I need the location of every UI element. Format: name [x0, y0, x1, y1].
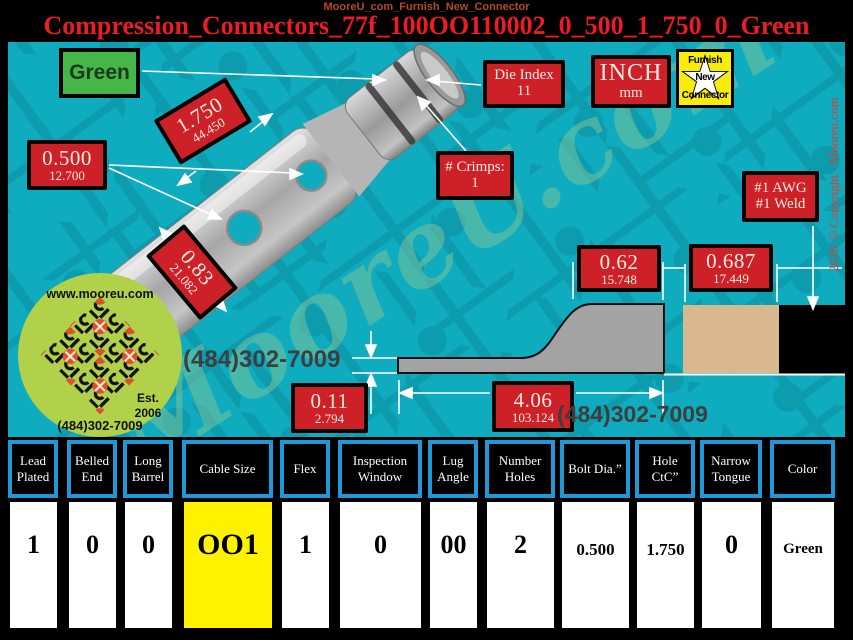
phone-number-2: (484)302-7009	[557, 401, 708, 428]
col-header-color: Color	[770, 440, 835, 498]
units-label: INCH mm	[591, 55, 671, 108]
col-header-bolt-dia: Bolt Dia.”	[560, 440, 630, 498]
value-lug-angle: 00	[430, 502, 477, 628]
value-number-holes: 2	[487, 502, 554, 628]
pad-height-label: 0.62 15.748	[577, 245, 661, 292]
company-logo: www.mooreu.com Est. 2006 (484)302-7009	[17, 272, 183, 438]
profile-drawing	[398, 304, 845, 375]
value-hole-ctc: 1.750	[637, 502, 694, 628]
col-header-narrow-tongue: Narrow Tongue	[700, 440, 762, 498]
logo-phone: (484)302-7009	[57, 418, 142, 433]
value-narrow-tongue: 0	[702, 502, 761, 628]
furnish-line3: Connector	[679, 90, 731, 101]
col-header-cable-size: Cable Size	[182, 440, 273, 498]
copyright-notice: 2018 ©Copyright - Mooreu.com	[826, 48, 842, 272]
value-bolt-dia: 0.500	[562, 502, 629, 628]
tongue-thickness-label: 0.11 2.794	[291, 383, 368, 433]
col-header-flex: Flex	[280, 440, 330, 498]
crimps-label: # Crimps: 1	[436, 151, 514, 200]
value-lead-plated: 1	[10, 502, 57, 628]
barrel-bore-view	[779, 305, 845, 375]
furnish-line1: Furnish	[679, 55, 731, 66]
value-long-barrel: 0	[125, 502, 172, 628]
logo-url: www.mooreu.com	[45, 287, 153, 301]
col-header-lead-plated: Lead Plated	[8, 440, 58, 498]
page: MooreU_com_Furnish_New_Connector Compres…	[0, 0, 853, 640]
col-header-long-barrel: Long Barrel	[123, 440, 173, 498]
attribute-table: Lead Plated Belled End Long Barrel Cable…	[0, 437, 853, 640]
phone-number-1: (484)302-7009	[183, 346, 340, 374]
col-header-number-holes: Number Holes	[485, 440, 555, 498]
value-color: Green	[772, 502, 834, 628]
value-flex: 1	[282, 502, 329, 628]
logo-est: Est.	[137, 391, 159, 405]
furnish-line2: New	[679, 72, 731, 83]
col-header-lug-angle: Lug Angle	[428, 440, 478, 498]
barrel-od-label: 0.687 17.449	[689, 244, 773, 292]
value-inspection-window: 0	[340, 502, 421, 628]
barrel-end-view	[683, 305, 779, 373]
col-header-belled-end: Belled End	[67, 440, 117, 498]
value-belled-end: 0	[69, 502, 116, 628]
value-cable-size: OO1	[184, 502, 272, 628]
col-header-inspection-window: Inspection Window	[338, 440, 422, 498]
color-green-button[interactable]: Green	[59, 48, 140, 98]
die-index-label: Die Index 11	[483, 60, 565, 108]
awg-weld-label: #1 AWG #1 Weld	[742, 171, 819, 222]
col-header-hole-ctc: Hole CtC”	[635, 440, 695, 498]
bolt-dia-label: 0.500 12.700	[27, 140, 107, 190]
furnish-new-connector-button[interactable]: Furnish New Connector	[676, 49, 734, 108]
